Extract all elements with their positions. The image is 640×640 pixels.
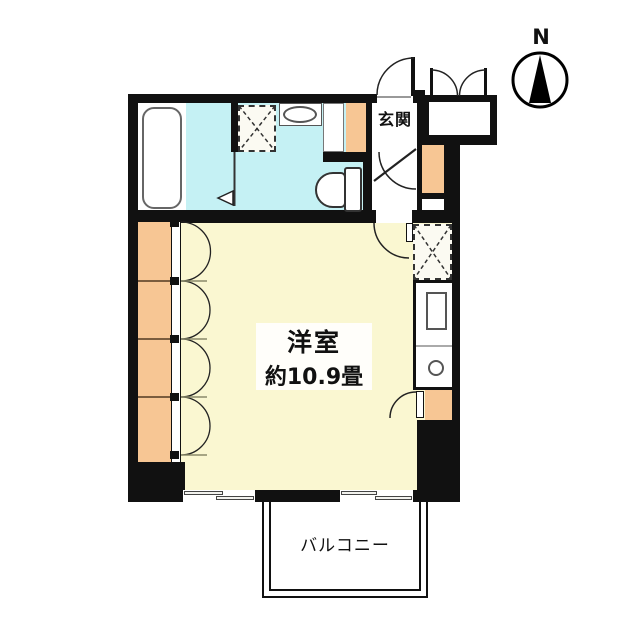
kitchen-sink [428,360,444,376]
floor-plan: N 玄関 洋室 約10.9畳 バルコニー [0,0,640,640]
entrance-door-swing [377,58,414,95]
window-hinge [170,335,179,343]
main-room-door-leaf [406,223,413,242]
wall-top [128,94,377,103]
storage-door-swing [460,70,486,96]
window-hinge [170,451,179,459]
entrance-label: 玄関 [374,109,416,131]
window-hinge [170,277,179,285]
window-hinge [170,393,179,401]
column-strip-divider [138,396,172,398]
storage-box [422,95,497,145]
washing-machine-pan [238,105,276,152]
storage-door-swing [432,70,458,96]
wall-bottom-right [413,490,460,502]
meter-box [422,199,444,210]
closet [413,224,452,280]
column-kitchen [425,390,452,420]
column-washroom [346,103,366,152]
storage-door-leaf [430,68,433,96]
column-strip-divider [138,338,172,340]
main-room-name: 洋室 [287,323,341,359]
sliding-window-panel [184,491,223,495]
wall-right-upper [444,145,460,210]
compass-north-icon [513,53,567,107]
kitchen-stove [426,292,447,330]
wall-mass-bottom-right [417,420,460,497]
entrance-threshold [377,96,411,98]
washroom-cabinet [323,103,344,152]
wall-left [128,94,138,502]
wall-bottom-mid [255,490,340,502]
north-label: N [527,24,555,50]
main-room-size: 約10.9畳 [265,359,363,391]
kitchen-divider [416,345,452,347]
sliding-window-panel [375,496,412,500]
wash-basin-bowl [283,106,317,123]
storage-door-leaf [484,68,487,96]
wall-bath-partition [231,94,238,152]
window-hinge [170,219,179,227]
balcony-label: バルコニー [275,535,415,559]
toilet-tank [344,167,362,212]
kitchen-side-door-leaf [416,391,424,418]
entrance-door-leaf [411,57,415,96]
column-strip-west [138,222,172,462]
sliding-window-panel [216,496,254,500]
wall-under-cabinet [323,152,368,162]
column-strip-divider [138,280,172,282]
wall-mass-bottom-left [128,462,185,502]
toilet-bowl [315,172,346,208]
kitchen-wall-bottom [413,387,452,390]
column-entrance [422,145,444,193]
bathtub [142,107,182,209]
sliding-window-panel [341,491,377,495]
main-room-door-opening [376,210,412,223]
kitchen-edge-left [413,283,416,390]
main-room-label: 洋室 約10.9畳 [256,323,372,390]
